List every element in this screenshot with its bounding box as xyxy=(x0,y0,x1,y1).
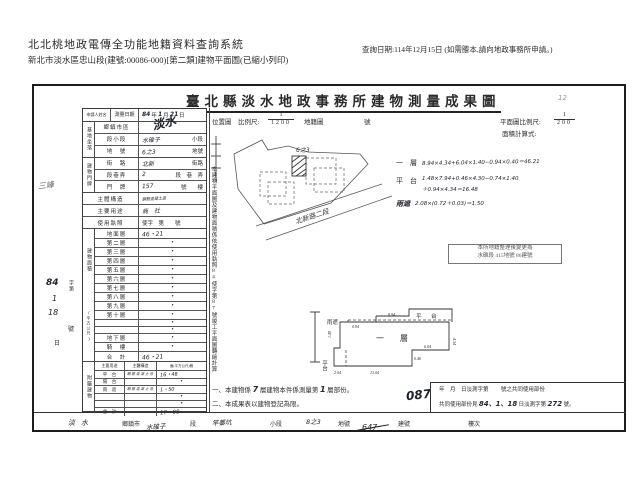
floor-label: 第十層 xyxy=(95,311,139,319)
note1-part: 層建物本件係測量第 xyxy=(260,387,319,394)
floor-plan: 一 層 平 台 平台 雨遮 8.94 0.94 4.34 1.40 2.04 1… xyxy=(302,278,516,386)
stamp-line1: 本所地籍整理後變更為 xyxy=(449,245,561,253)
floor-value: 46・21 xyxy=(142,228,164,238)
floor-label: 第二層 xyxy=(95,239,139,247)
plan-floor-label: 一 層 xyxy=(376,334,412,343)
strip-label: 小段 xyxy=(270,419,282,428)
table-row: 街 路 北新街路 xyxy=(95,158,206,169)
lot-print: 地號 xyxy=(192,147,203,155)
table-row: 第四層• xyxy=(95,256,206,265)
annex-use: 平 台 xyxy=(95,371,125,378)
row-label-usage: 主要用途 xyxy=(83,205,139,216)
shared-use-box: 年 月 日淡測字第 號之共同使用部份 共同使用部份見 84、1、18 日淡測字第… xyxy=(430,382,626,412)
note1-level-hand: 1 xyxy=(320,385,326,394)
lane-print: 段 巷 弄 xyxy=(175,171,203,179)
floor-total-label: 合 計 xyxy=(95,352,139,361)
doorplate-hand: 157 xyxy=(142,183,154,191)
strip-label: 樓次 xyxy=(468,419,480,428)
plan-scale-denominator: 200 xyxy=(554,119,575,127)
table-row: 騎 樓• xyxy=(95,342,206,351)
floor-value: • xyxy=(142,294,203,300)
dim-label: 0.46 xyxy=(414,356,421,361)
cadastral-no-label: 號 xyxy=(364,116,371,126)
strip-hand: 竿蓁坑 xyxy=(212,416,232,427)
cadastral-map-label: 地籍圖 xyxy=(304,116,324,126)
table-row: 第八層• xyxy=(95,292,206,301)
floor-label: 地面層 xyxy=(95,229,139,238)
dim-label: 13.04 xyxy=(370,370,379,375)
north-arrow-icon xyxy=(211,136,221,182)
floor-value: • xyxy=(142,335,203,341)
floor-label: 第五層 xyxy=(95,266,139,274)
row-label-structure: 主體構造 xyxy=(83,193,139,204)
site-group-label: 基地坐落 xyxy=(86,127,91,151)
table-row: 第三層• xyxy=(95,247,206,256)
stamp-day-hand: 18 xyxy=(48,308,58,317)
license-value: 使字 第 號 xyxy=(142,219,181,227)
calc-formula-hand: 2.08×(0.72＋0.03)＝1.50 xyxy=(415,199,484,209)
subject-building-hatched xyxy=(292,156,306,176)
map-lot-label: 6之3 xyxy=(296,146,310,154)
floor-label: 騎 樓 xyxy=(95,343,139,351)
table-row: 第九層• xyxy=(95,301,206,310)
annex-group-label: 附屬建物 xyxy=(86,375,91,399)
floor-label: 第八層 xyxy=(95,293,139,301)
shared-line1-part: 號之共同使用部份 xyxy=(501,387,545,393)
system-title: 北北桃地政電傳全功能地籍資料查詢系統 xyxy=(28,36,244,52)
dim-label: 0.94 xyxy=(352,324,359,329)
floor-label: 第九層 xyxy=(95,302,139,310)
plan-scale-label: 平面圖比例尺: xyxy=(500,116,541,126)
note1-part: 層部份。 xyxy=(327,387,353,394)
table-row: 鄉鎮市區 xyxy=(95,122,206,133)
plan-platform-left-label: 平台 xyxy=(321,360,328,373)
table-row: 第二層• xyxy=(95,238,206,247)
scale-label: 比例尺: xyxy=(238,116,259,126)
applicant-label: 申請人姓名 xyxy=(83,109,111,121)
calc-line-floor1: 一 層 8.94×4.34+6.04×1.40−0.94×0.40＝46.21 xyxy=(396,158,622,168)
annex-header-use: 主要用途 xyxy=(95,362,125,370)
strip-label: 鄉鎮市 xyxy=(122,419,140,428)
table-row: • xyxy=(95,326,206,333)
strip-hand: 淡水 xyxy=(68,418,94,428)
shared-line2-part: 日淡測字第 xyxy=(519,402,547,408)
dim-label: 4.34 xyxy=(452,338,457,345)
row-label-lot: 地 號 xyxy=(95,146,139,157)
calc-formula-hand: 1.48×7.94+0.46×4.30−0.74×1.40 xyxy=(422,176,519,182)
table-row: 地下層• xyxy=(95,333,206,342)
stamp-print-hao: 號 xyxy=(68,324,74,333)
floor-value: • xyxy=(142,240,203,246)
table-row: 第七層• xyxy=(95,283,206,292)
calc-label: 平 台 xyxy=(396,176,417,193)
usage-hand: 商 社 xyxy=(142,206,160,216)
annex-struct-hand: 鋼筋混凝土造 xyxy=(127,387,154,392)
table-row: 門 牌 157號 樓 xyxy=(95,180,206,192)
annex-row: 平 台 鋼筋混凝土造 16・48 xyxy=(95,370,206,378)
survey-sheet: 臺北縣淡水地政事務所建物測量成果圖 12 三峰 84 1 18 字第 號 日 申… xyxy=(32,84,626,432)
note1-floors-hand: 7 xyxy=(253,385,259,394)
pencil-mark: 12 xyxy=(558,94,567,102)
floor-value: • xyxy=(142,276,203,282)
annex-row: • xyxy=(95,400,206,407)
plan-platform-top-label: 平 台 xyxy=(416,312,439,320)
strip-hand: 8之3 xyxy=(306,416,321,426)
lot-change-stamp: 本所地籍整理後變更為 水碓段 415地號 86建號 xyxy=(448,244,562,264)
big-number-hand: 087 xyxy=(405,387,431,404)
query-date: 查詢日期:114年12月15日 (如需謄本,請向地政事務所申請。) xyxy=(362,44,553,55)
table-row: 使用執照 使字 第 號 xyxy=(83,216,206,228)
note-2: 二、本成果表以建物登記為限。 xyxy=(212,398,430,408)
dim-label: 6.04 xyxy=(424,344,431,349)
annex-row: • xyxy=(95,393,206,400)
stamp-print-ri: 日 xyxy=(54,338,60,347)
table-row: 地 號 6之3地號 xyxy=(95,145,206,157)
floor-value: • xyxy=(142,344,203,350)
note-1: 一、本建物係 7 層建物本件係測量第 1 層部份。 xyxy=(212,384,430,394)
annex-header-row: 主要用途 主體構造 面(平方公尺)積 xyxy=(95,362,206,370)
sheet-title: 臺北縣淡水地政事務所建物測量成果圖 xyxy=(186,90,501,113)
location-map: 6之3 北新路二段 xyxy=(210,130,402,272)
plan-dimensions: 8.94 0.94 4.34 1.40 2.04 13.04 6.04 0.46 xyxy=(327,312,457,375)
dim-label: 8.94 xyxy=(388,312,395,317)
shared-no-hand: 272 xyxy=(548,400,563,408)
scale-denominator: 1200 xyxy=(268,119,294,127)
building-info-table: 申請人姓名 測量日期 84年 1月 21日 基地坐落 鄉鎮市區 段小段 水碓子小… xyxy=(82,108,207,412)
floor-label: 第四層 xyxy=(95,257,139,265)
note1-part: 一、本建物係 xyxy=(212,387,251,394)
section-print: 小段 xyxy=(192,135,203,143)
calc-line-canopy: 雨遮 2.08×(0.72＋0.03)＝1.50 xyxy=(396,199,622,209)
margin-scrawl: 三峰 xyxy=(37,179,54,192)
area-calc-notes: 一 層 8.94×4.34+6.04×1.40−0.94×0.40＝46.21 … xyxy=(396,158,622,209)
floor-value: • xyxy=(142,249,203,255)
row-label-township: 鄉鎮市區 xyxy=(95,122,139,133)
doorplate-print: 號 樓 xyxy=(181,183,203,191)
structure-hand: 鋼筋混凝土造 xyxy=(142,195,166,202)
floor-value: • xyxy=(142,303,203,309)
lot-hand: 6之3 xyxy=(142,146,156,156)
row-label-street: 街 路 xyxy=(95,158,139,169)
area-calc-label: 面積計算式: xyxy=(502,128,536,138)
north-arrow-icon xyxy=(310,312,320,362)
strip-label: 段 xyxy=(190,419,196,428)
stamp-print-zidi: 字第 xyxy=(68,280,73,310)
area-unit-label: (平方公尺) xyxy=(87,310,91,342)
floor-value: • xyxy=(142,285,203,291)
row-label-lane: 段巷弄 xyxy=(95,170,139,181)
table-row: 第十層• xyxy=(95,310,206,319)
annex-row: 陽 台 • xyxy=(95,378,206,385)
shared-use-line2: 共同使用部份見 84、1、18 日淡測字第 272 號。 xyxy=(439,399,626,409)
row-label-license: 使用執照 xyxy=(83,217,139,228)
stamp-month-hand: 1 xyxy=(52,294,57,303)
calc-formula-hand: ＋0.94×4.34＝16.48 xyxy=(422,185,519,193)
annex-row: 雨 遮 鋼筋混凝土造 1・50 xyxy=(95,385,206,393)
table-row: 合 計46・21 xyxy=(95,351,206,361)
floor-label: 地下層 xyxy=(95,334,139,342)
dim-label: 1.40 xyxy=(327,331,332,338)
table-row: 地面層46・21 xyxy=(95,229,206,238)
location-map-label: 位置圖 xyxy=(212,116,232,126)
neighbor-buildings xyxy=(260,158,344,204)
strip-hand: 水碓子 xyxy=(146,420,166,431)
table-row: 段巷弄 2段 巷 弄 xyxy=(95,169,206,181)
annex-struct-hand: 鋼筋混凝土造 xyxy=(127,372,154,377)
shared-line2-part: 共同使用部份見 xyxy=(439,402,478,408)
shared-line2-part: 號。 xyxy=(564,402,575,408)
table-row: 段小段 水碓子小段 xyxy=(95,133,206,145)
annex-area-hand: 1・50 xyxy=(160,386,175,394)
plan-dashed-lines xyxy=(346,320,452,366)
document-subtitle: 新北市淡水區忠山段(建號:00086-000)[第二類]建物平面圖(已縮小列印) xyxy=(28,54,288,66)
calc-label: 一 層 xyxy=(396,158,417,168)
calc-line-platform: 平 台 1.48×7.94+0.46×4.30−0.74×1.40 ＋0.94×… xyxy=(396,176,622,193)
strip-label: 建號 xyxy=(398,419,410,428)
floor-value: • xyxy=(142,267,203,273)
floor-label: 第七層 xyxy=(95,284,139,292)
dim-label: 2.04 xyxy=(334,370,341,375)
table-row: 第五層• xyxy=(95,265,206,274)
calc-label: 雨遮 xyxy=(396,199,410,209)
plan-scale-fraction: 1200 xyxy=(554,112,575,126)
receipt-stamp: 84 1 18 字第 號 日 xyxy=(46,278,80,356)
table-row: 主要用途 商 社 xyxy=(83,204,206,216)
annex-area-hand: 16・48 xyxy=(160,371,178,379)
section-hand: 水碓子 xyxy=(142,134,160,144)
road-name-label: 北新路二段 xyxy=(294,207,331,226)
shared-line1-part: 年 月 日淡測字第 xyxy=(439,387,489,393)
table-row: • xyxy=(95,319,206,326)
plan-canopy-label: 雨遮 xyxy=(327,318,339,326)
unit-day: 日 xyxy=(179,111,185,119)
bottom-strip: 淡水 鄉鎮市 水碓子 段 竿蓁坑 小段 8之3 地號 647 建號 樓次 xyxy=(34,412,626,432)
plan-scale-numerator: 1 xyxy=(563,112,566,118)
floor-label: 第三層 xyxy=(95,248,139,256)
floor-label: 第六層 xyxy=(95,275,139,283)
strip-hand-struck: 647 xyxy=(362,423,377,432)
floor-value: • xyxy=(142,312,203,318)
floor-total-value: 46・21 xyxy=(142,351,164,361)
annex-header-area: 面(平方公尺)積 xyxy=(157,362,206,370)
shared-use-line1: 年 月 日淡測字第 號之共同使用部份 xyxy=(439,385,626,393)
table-row: 第六層• xyxy=(95,274,206,283)
stamp-year-hand: 84 xyxy=(46,278,59,288)
stamp-line2: 水碓段 415地號 86建號 xyxy=(449,253,561,261)
door-group-label: 建物門牌 xyxy=(86,163,91,187)
floor-value: • xyxy=(142,258,203,264)
scale-numerator: 1 xyxy=(280,112,283,118)
street-hand: 北新 xyxy=(142,158,154,168)
annex-header-struct: 主體構造 xyxy=(125,362,157,370)
row-label-doorplate: 門 牌 xyxy=(95,181,139,192)
annex-use: 雨 遮 xyxy=(95,386,125,393)
area-group-label: 建物面積 xyxy=(86,248,91,272)
calc-formula-hand: 8.94×4.34+6.04×1.40−0.94×0.40＝46.21 xyxy=(422,157,540,169)
survey-date-label: 測量日期 xyxy=(111,109,139,121)
street-print: 街路 xyxy=(192,159,203,167)
table-row: 主體構造 鋼筋混凝土造 xyxy=(83,193,206,204)
row-label-section: 段小段 xyxy=(95,134,139,145)
footer-notes: 一、本建物係 7 層建物本件係測量第 1 層部份。 二、本成果表以建物登記為限。 xyxy=(212,384,430,408)
strip-label: 地號 xyxy=(338,419,350,428)
shared-date-hand: 84、1、18 xyxy=(479,400,517,408)
lane-hand: 2 xyxy=(142,171,146,178)
survey-date-year: 84 xyxy=(142,111,151,118)
location-scale-fraction: 11200 xyxy=(268,112,294,126)
